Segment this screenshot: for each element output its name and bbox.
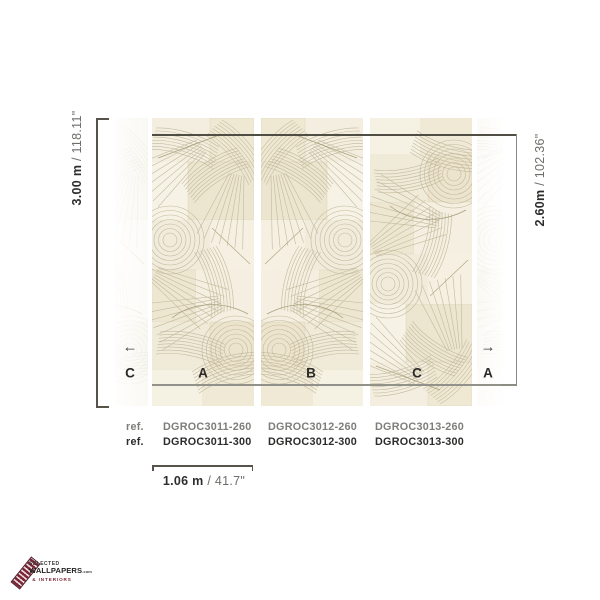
selected-wallpapers-logo[interactable]: SELECTED WALLPAPERS.com & INTERIORS <box>6 555 76 595</box>
logo-sub-line: & INTERIORS <box>29 576 75 583</box>
panel-b <box>261 118 363 406</box>
panel-partial-right <box>477 118 503 406</box>
panel-height-metric: 2.60m <box>533 190 547 227</box>
wallpaper-spec-sheet: 3.00 m / 118.11" 2.60m / 102.36" 1.06 m … <box>0 0 600 600</box>
panel-letter-c-left: C <box>125 366 135 381</box>
panel-height-top-line <box>152 134 517 136</box>
wallpaper-texture <box>261 118 363 406</box>
panel-height-imperial: / 102.36" <box>533 133 547 185</box>
ref-label-row1: ref. <box>126 421 144 434</box>
logo-suffix: .com <box>82 569 92 574</box>
left-bracket-vertical <box>96 118 98 408</box>
left-bracket-bottom-foot <box>96 406 109 408</box>
right-bracket-vertical <box>516 134 518 386</box>
ref-code: DGROC3011-300 <box>163 436 251 449</box>
panel-width-metric: 1.06 m <box>163 474 204 488</box>
ref-label-row2: ref. <box>126 436 144 449</box>
left-bracket-top-foot <box>96 118 109 120</box>
total-height-imperial: / 118.11" <box>70 111 84 161</box>
repeat-left-arrow-icon: ← <box>123 339 138 356</box>
panel-letter-a-right: A <box>483 366 493 381</box>
panel-width-label: 1.06 m / 41.7" <box>163 474 245 488</box>
width-tick-right <box>252 465 254 471</box>
panel-letter-b: B <box>306 366 316 381</box>
panel-width-imperial: / 41.7" <box>207 474 245 488</box>
ref-code: DGROC3013-260 <box>375 421 464 434</box>
panel-a <box>152 118 254 406</box>
ref-code: DGROC3013-300 <box>375 436 464 449</box>
panel-c <box>370 118 472 406</box>
panel-letter-a: A <box>198 366 208 381</box>
ref-code: DGROC3012-260 <box>268 421 357 434</box>
width-tick-left <box>152 465 154 471</box>
ref-code: DGROC3011-260 <box>163 421 251 434</box>
ref-code: DGROC3012-300 <box>268 436 357 449</box>
total-height-metric: 3.00 m <box>70 165 84 206</box>
logo-main-line: WALLPAPERS.com <box>29 567 75 576</box>
repeat-right-arrow-icon: → <box>481 339 496 356</box>
wallpaper-texture <box>370 118 472 406</box>
panel-height-label: 2.60m / 102.36" <box>533 133 547 226</box>
width-dimension-line <box>152 465 253 467</box>
wallpaper-texture <box>477 118 503 406</box>
right-bracket-foot <box>501 384 517 386</box>
panel-height-bottom-line <box>152 384 506 386</box>
wallpaper-artwork <box>115 118 503 406</box>
panel-letter-c: C <box>412 366 422 381</box>
logo-main-word: WALLPAPERS <box>29 566 82 575</box>
total-height-label: 3.00 m / 118.11" <box>70 111 84 206</box>
wallpaper-texture <box>152 118 254 406</box>
panel-partial-left <box>115 118 148 406</box>
wallpaper-texture <box>115 118 148 406</box>
logo-text: SELECTED WALLPAPERS.com & INTERIORS <box>29 561 75 583</box>
